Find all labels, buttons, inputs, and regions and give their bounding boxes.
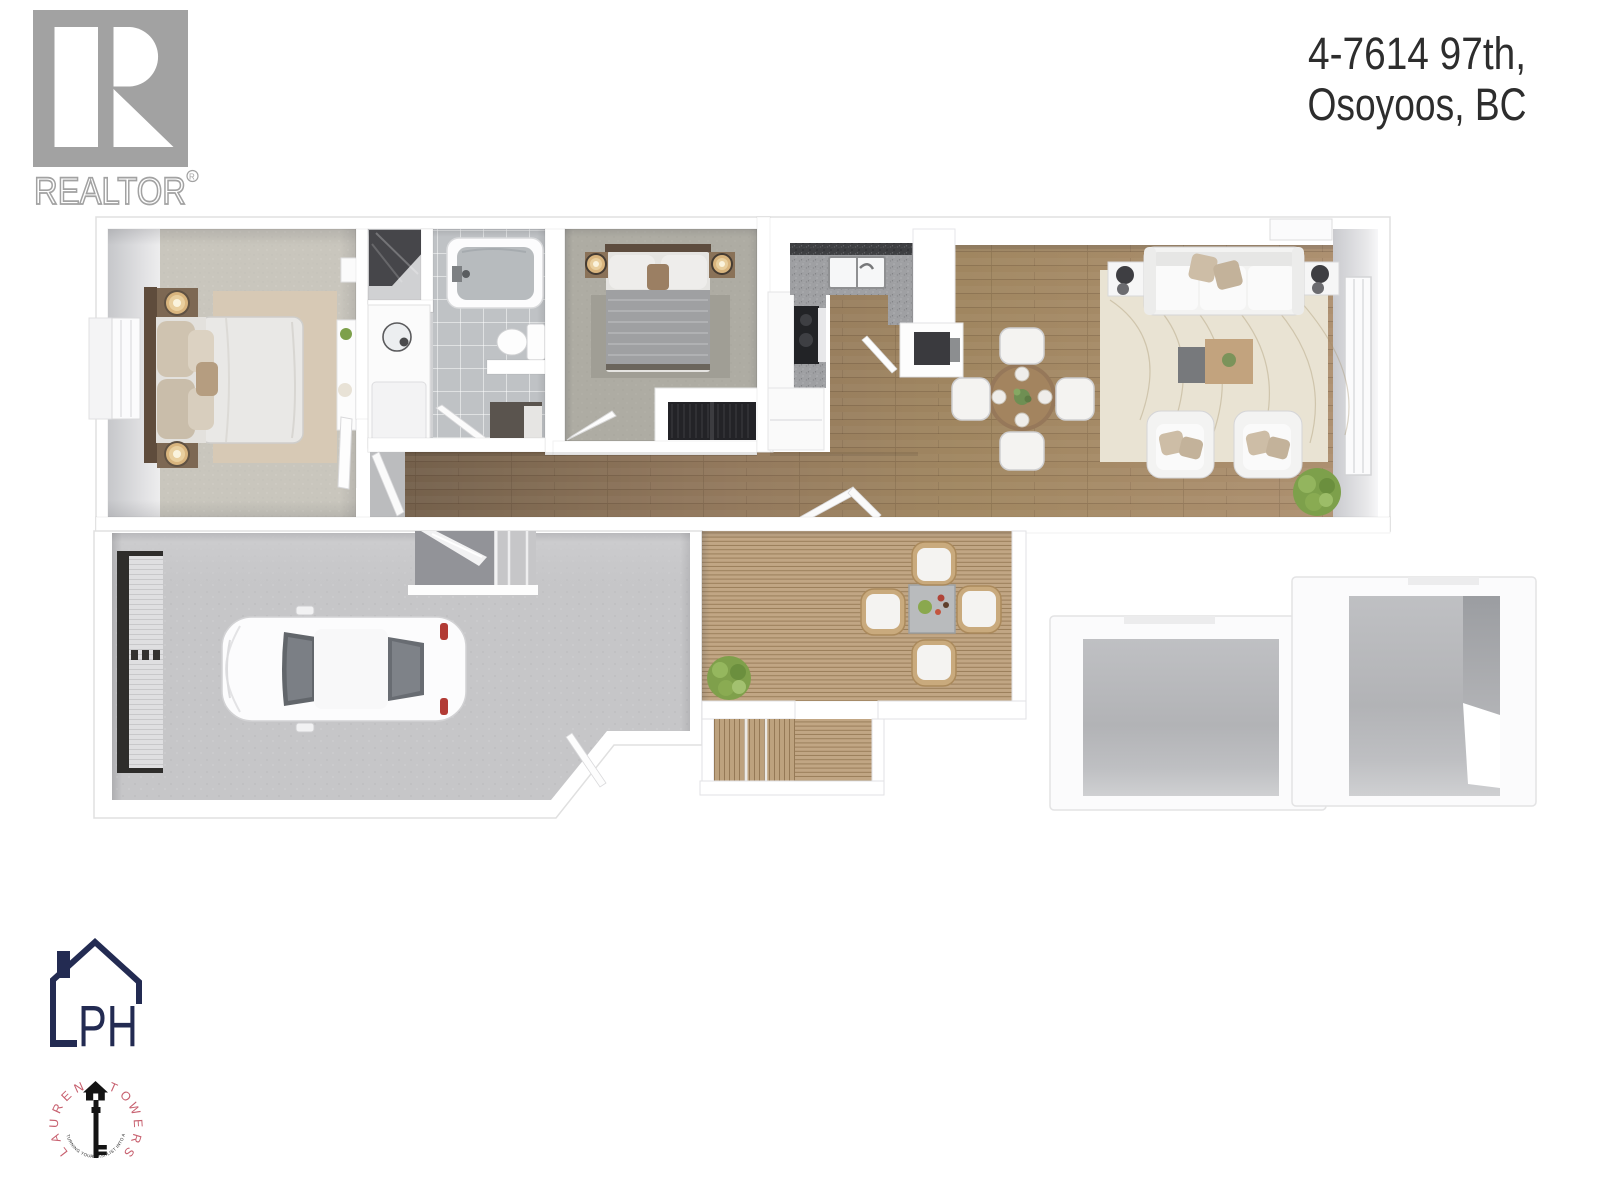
svg-text:E: E bbox=[131, 1119, 145, 1128]
svg-text:REALTOR: REALTOR bbox=[34, 171, 186, 213]
svg-text:Osoyoos, BC: Osoyoos, BC bbox=[1308, 79, 1527, 130]
svg-text:4-7614 97th,: 4-7614 97th, bbox=[1308, 28, 1526, 79]
svg-text:R: R bbox=[189, 173, 195, 182]
svg-text:PH: PH bbox=[78, 994, 138, 1059]
svg-text:U: U bbox=[47, 1118, 62, 1128]
